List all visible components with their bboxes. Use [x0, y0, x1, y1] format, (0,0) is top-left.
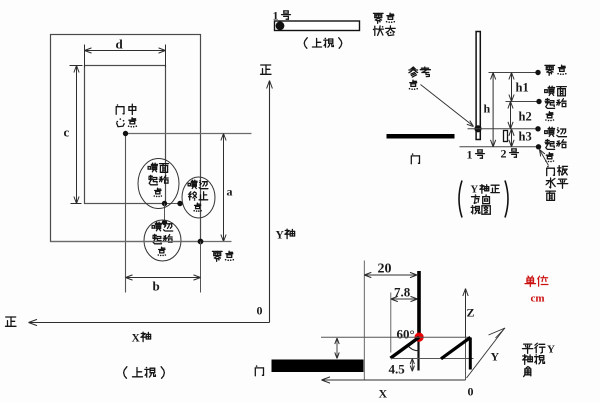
- svg-text:Y: Y: [276, 230, 285, 242]
- svg-text:h3: h3: [519, 130, 532, 144]
- svg-text:b: b: [153, 279, 160, 294]
- svg-text:h: h: [484, 102, 491, 116]
- svg-text:1: 1: [467, 148, 473, 162]
- svg-text:20: 20: [378, 262, 392, 277]
- svg-text:2: 2: [501, 147, 507, 161]
- svg-text:7.8: 7.8: [394, 285, 411, 300]
- svg-text:0: 0: [257, 304, 263, 318]
- svg-text:Y: Y: [547, 344, 555, 356]
- svg-text:Y: Y: [491, 350, 500, 364]
- svg-text:60°: 60°: [397, 327, 415, 342]
- svg-text:cm: cm: [531, 293, 545, 305]
- svg-text:X: X: [379, 387, 388, 401]
- svg-text:4.5: 4.5: [389, 362, 406, 377]
- svg-text:0: 0: [468, 385, 474, 399]
- svg-text:Z: Z: [467, 306, 475, 320]
- svg-text:X: X: [132, 333, 141, 345]
- svg-text:d: d: [116, 37, 124, 52]
- svg-text:h1: h1: [516, 81, 529, 95]
- svg-text:c: c: [64, 125, 70, 140]
- svg-text:a: a: [227, 185, 233, 199]
- svg-text:Y: Y: [471, 185, 479, 196]
- svg-text:h2: h2: [519, 110, 532, 124]
